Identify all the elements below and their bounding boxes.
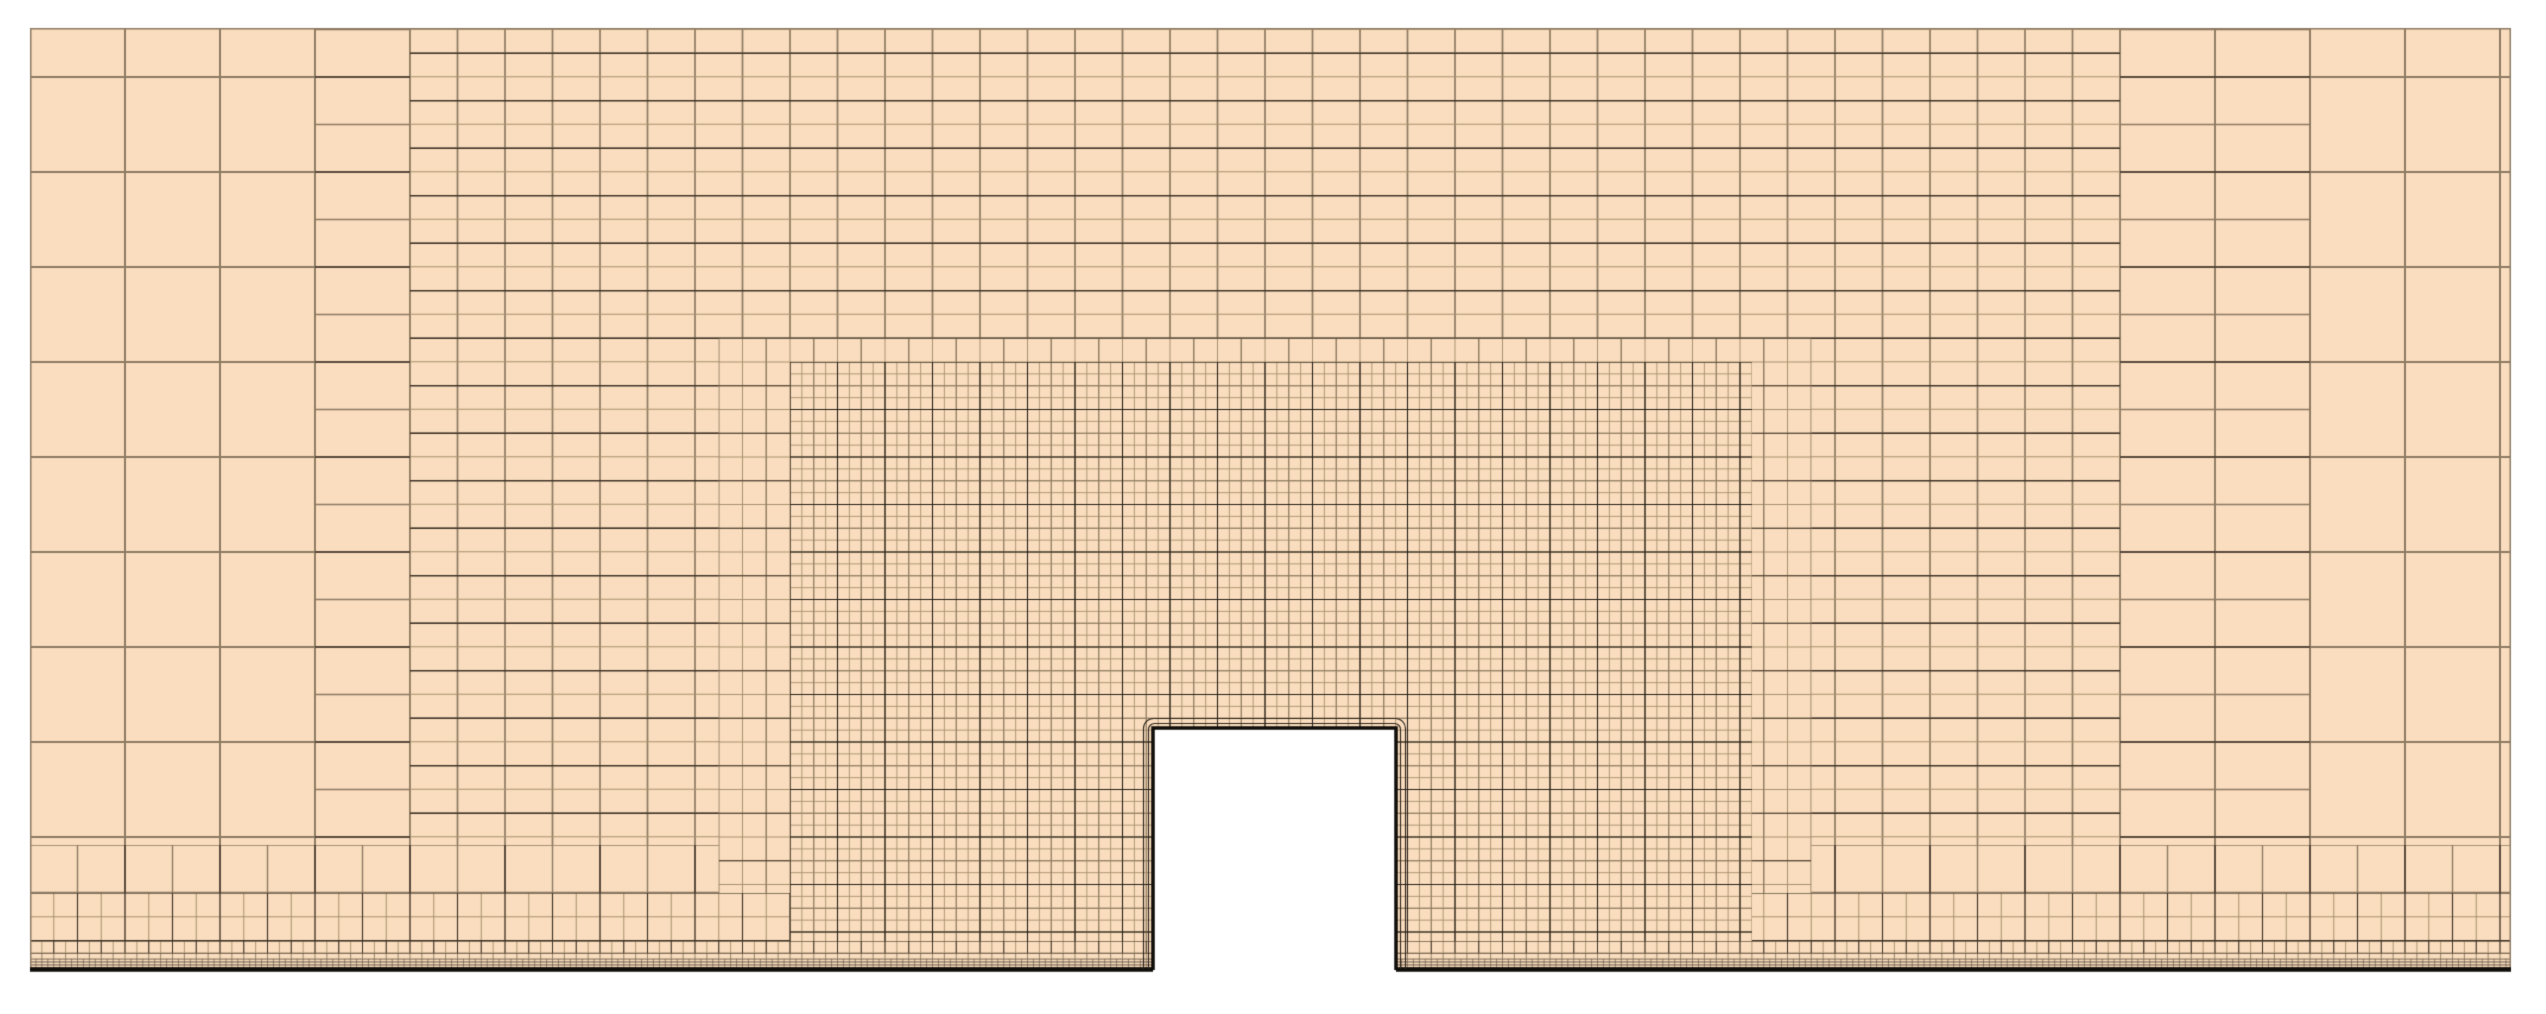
mesh-figure: [0, 0, 2546, 1014]
cfd-mesh-canvas: [0, 0, 2546, 1014]
